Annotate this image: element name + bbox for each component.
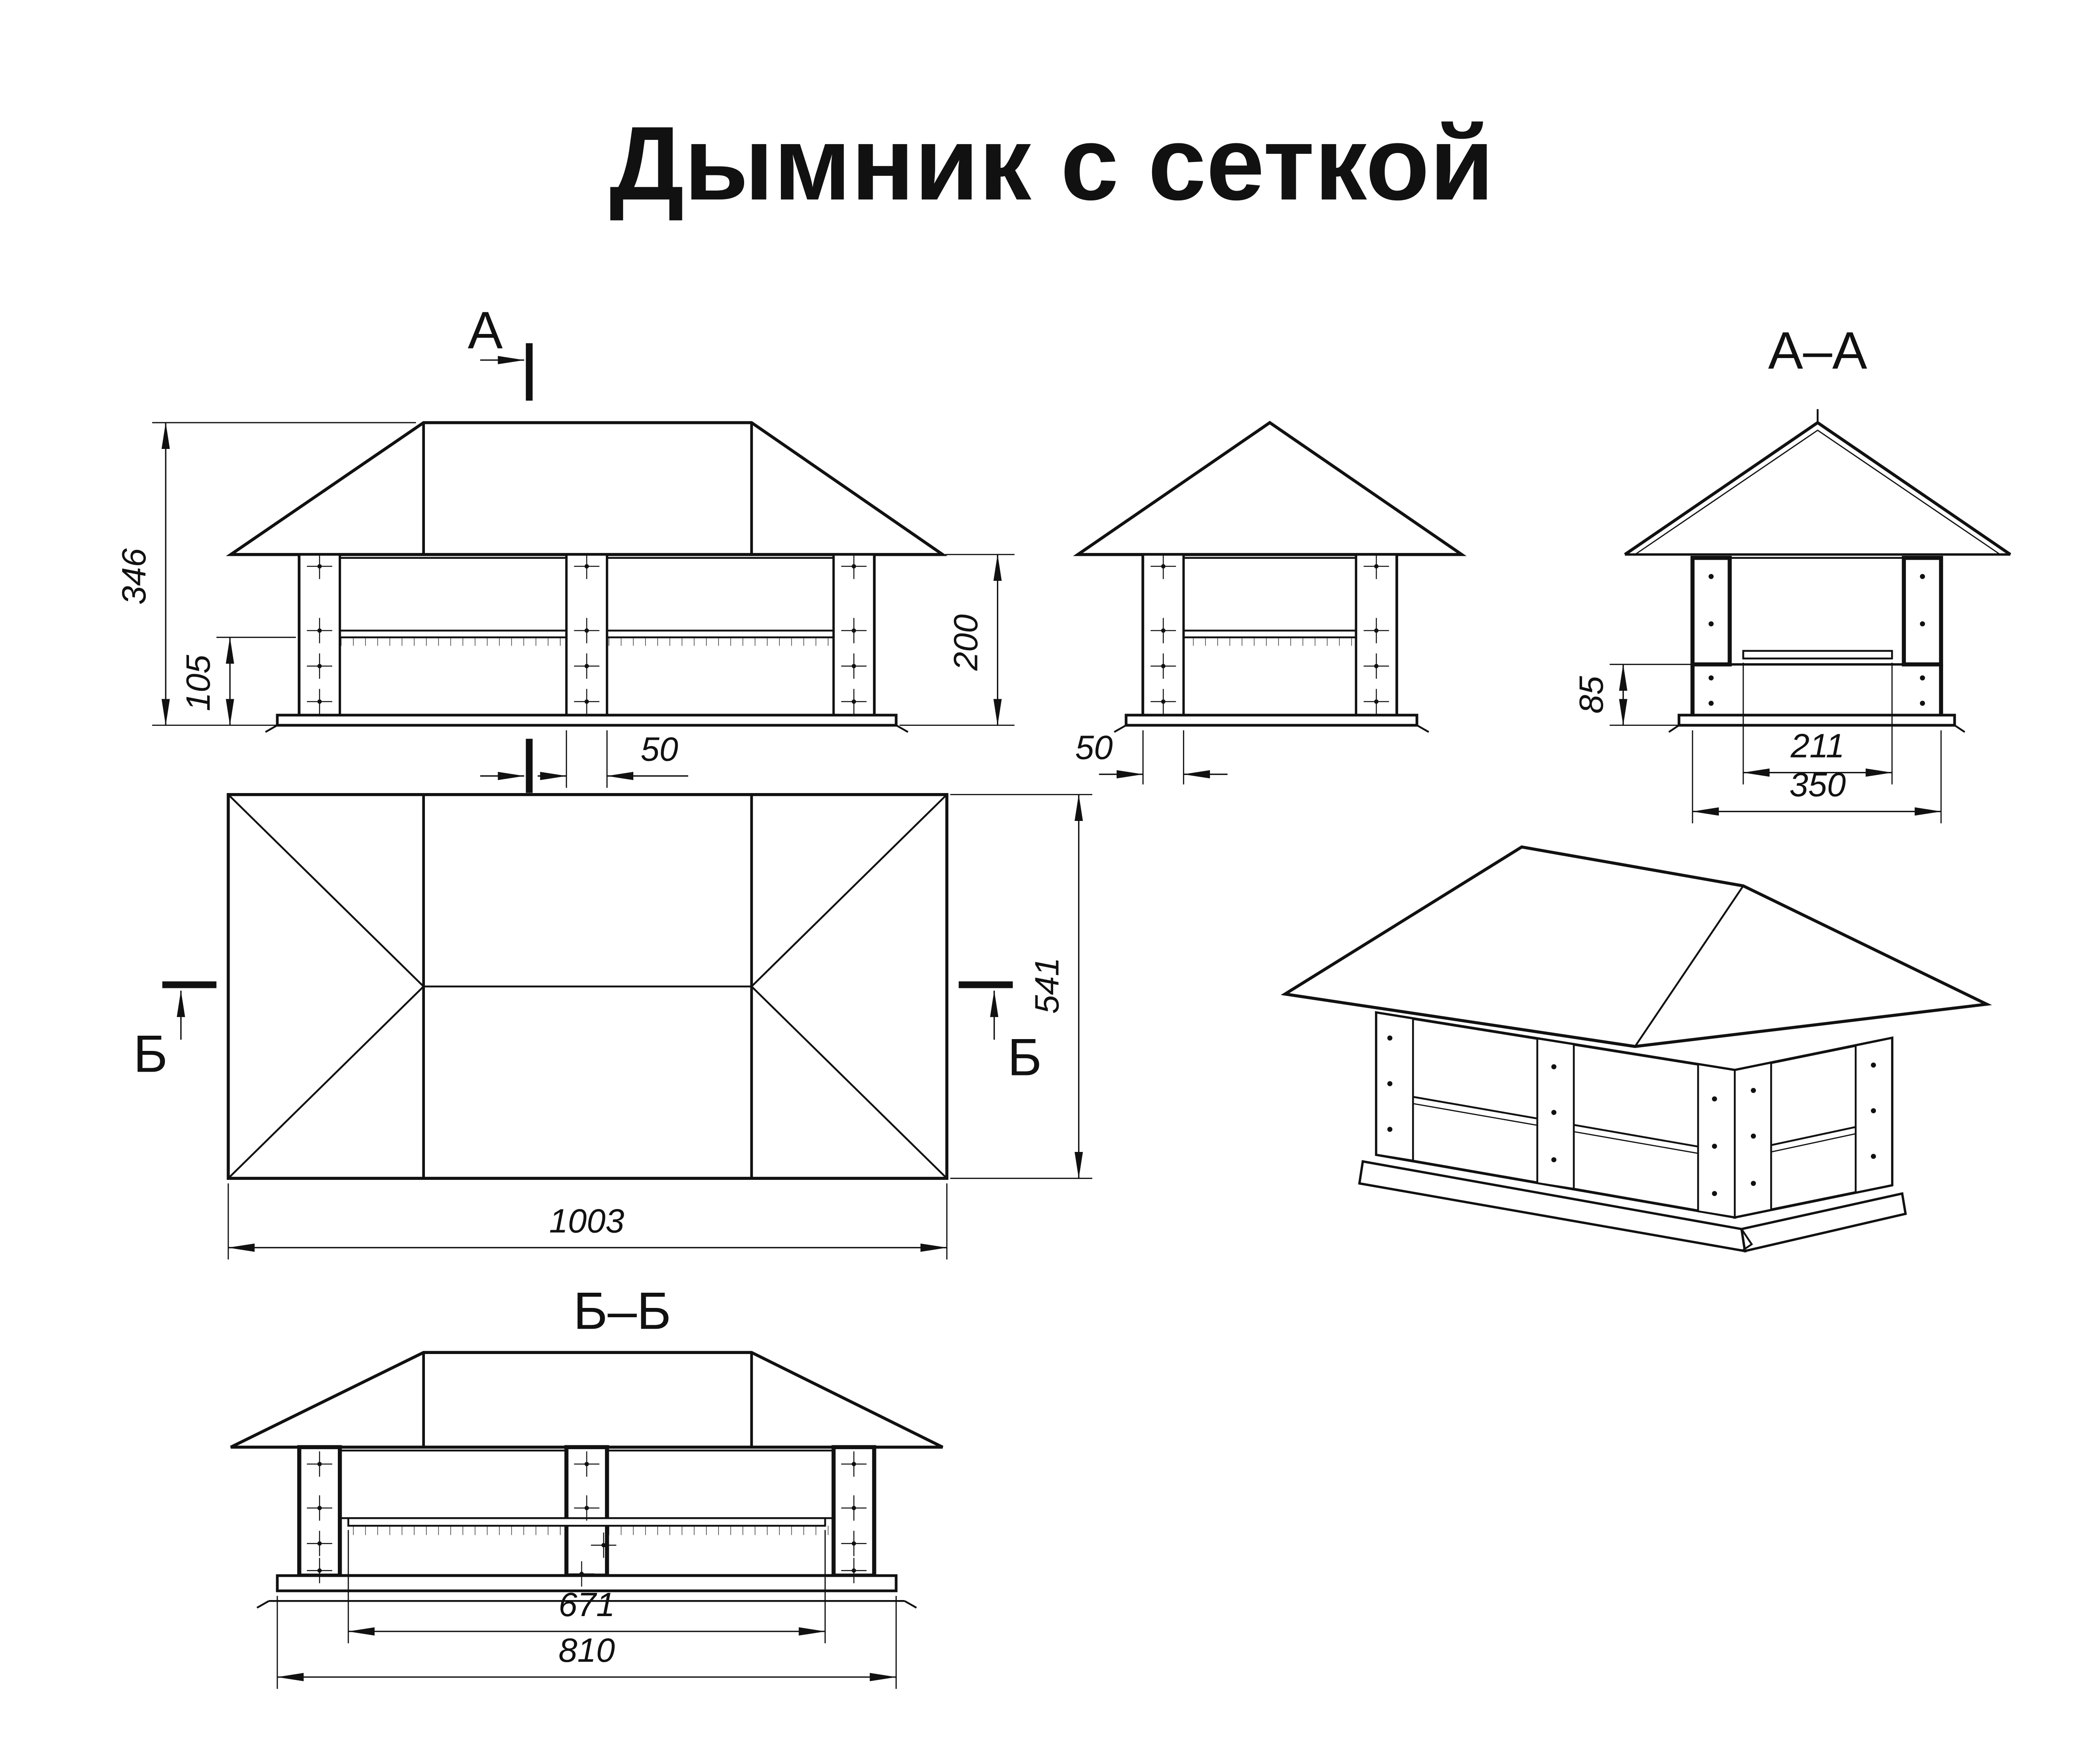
section-aa-view: А–А 85 211 (1572, 322, 2010, 823)
iso-post-corner-short (1735, 1063, 1771, 1217)
side-roof (1078, 423, 1462, 555)
plan-width-value: 541 (1028, 957, 1065, 1014)
side-mesh (1183, 558, 1356, 631)
iso-post-left (1376, 1013, 1413, 1161)
section-letter-b-right: Б (1008, 1028, 1042, 1086)
section-letter-a-top: А (468, 301, 503, 360)
section-bb-label: Б–Б (573, 1282, 671, 1340)
section-bb-view: Б–Б 671 (231, 1282, 943, 1689)
front-total-height-value: 346 (115, 548, 153, 605)
aa-skirt-height-value: 85 (1572, 676, 1610, 714)
aa-post-right (1904, 558, 1941, 665)
iso-post-right (1856, 1038, 1892, 1193)
front-mesh-left (340, 558, 567, 631)
section-letter-b-left: Б (133, 1025, 167, 1083)
plan-view: Б Б 541 1003 (133, 795, 1092, 1260)
side-post-width-value: 50 (1075, 729, 1113, 766)
aa-roof-outer (1625, 423, 2010, 555)
front-dim-200: 200 (900, 555, 1015, 725)
isometric-view (1285, 847, 1987, 1251)
aa-post-left (1692, 558, 1730, 665)
bb-roof (231, 1352, 943, 1447)
aa-base-flange (1679, 715, 1955, 725)
front-post-width-value: 50 (641, 730, 678, 768)
aa-base-width-value: 350 (1789, 766, 1845, 804)
aa-mesh (1730, 558, 1904, 665)
aa-liner (1743, 651, 1892, 659)
front-view: А А 50 346 105 (115, 301, 1015, 852)
section-aa-label: А–А (1768, 322, 1867, 380)
front-base-flange (277, 715, 896, 725)
front-mesh-right (607, 558, 834, 631)
side-dim-50: 50 (1075, 729, 1227, 785)
section-mark-a-top: А (468, 301, 529, 401)
front-skirt-height-value: 105 (179, 654, 217, 711)
bb-base-length-value: 810 (559, 1631, 615, 1669)
side-base-flange (1126, 715, 1417, 725)
front-roof (231, 423, 943, 555)
page-title: Дымник с сеткой (609, 105, 1494, 222)
technical-drawing: Дымник с сеткой А (0, 0, 2100, 1748)
aa-dim-85: 85 (1572, 665, 1692, 725)
bb-liner-length-value: 671 (559, 1586, 615, 1623)
side-view: 50 (1075, 423, 1462, 785)
plan-length-value: 1003 (549, 1202, 624, 1239)
front-dim-105: 105 (179, 637, 296, 725)
front-body-height-value: 200 (947, 614, 985, 671)
aa-inner-width-value: 211 (1790, 727, 1845, 765)
section-mark-b-left: Б (133, 985, 216, 1083)
front-dim-50: 50 (538, 730, 688, 788)
plan-dim-1003: 1003 (228, 1183, 947, 1259)
bb-mesh-left (340, 1450, 567, 1518)
bb-mesh-right (607, 1450, 834, 1518)
